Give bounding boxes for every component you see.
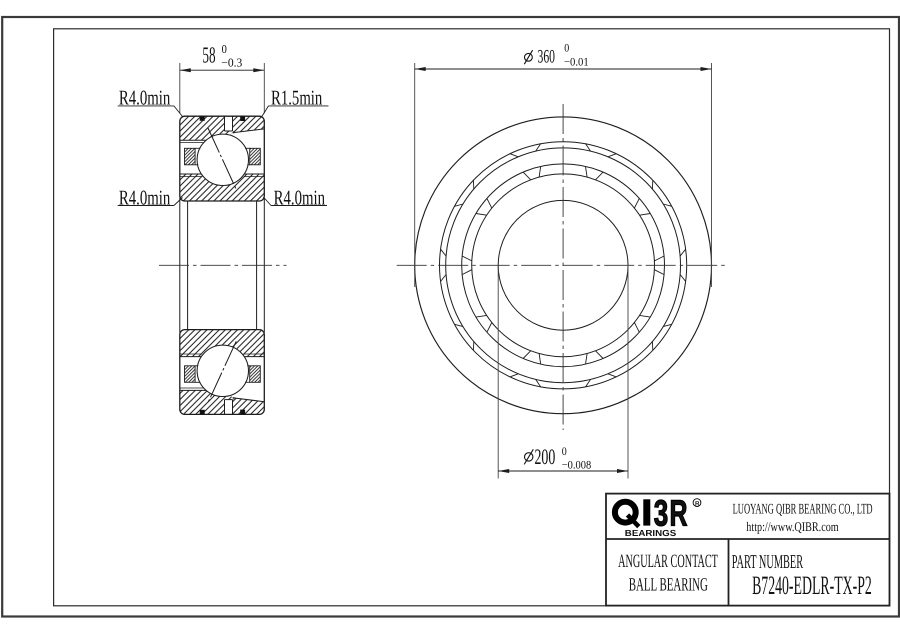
svg-text:ANGULAR CONTACT: ANGULAR CONTACT — [618, 551, 718, 572]
svg-text:http://www.QIBR.com: http://www.QIBR.com — [746, 519, 839, 534]
svg-text:0: 0 — [222, 42, 227, 56]
svg-text:−0.008: −0.008 — [562, 459, 592, 471]
svg-text:LUOYANG QIBR BEARING CO., LTD: LUOYANG QIBR BEARING CO., LTD — [733, 501, 873, 517]
svg-text:BEARINGS: BEARINGS — [625, 528, 677, 538]
svg-text:B7240-EDLR-TX-P2: B7240-EDLR-TX-P2 — [752, 570, 872, 600]
svg-text:−0.3: −0.3 — [221, 55, 242, 69]
svg-text:−0.01: −0.01 — [564, 57, 589, 69]
svg-text:200: 200 — [535, 444, 556, 469]
svg-text:0: 0 — [564, 43, 569, 55]
svg-text:R: R — [695, 500, 700, 507]
svg-text:58: 58 — [202, 43, 215, 68]
svg-text:0: 0 — [562, 446, 567, 458]
svg-text:BALL BEARING: BALL BEARING — [629, 574, 708, 595]
svg-text:360: 360 — [538, 47, 556, 68]
